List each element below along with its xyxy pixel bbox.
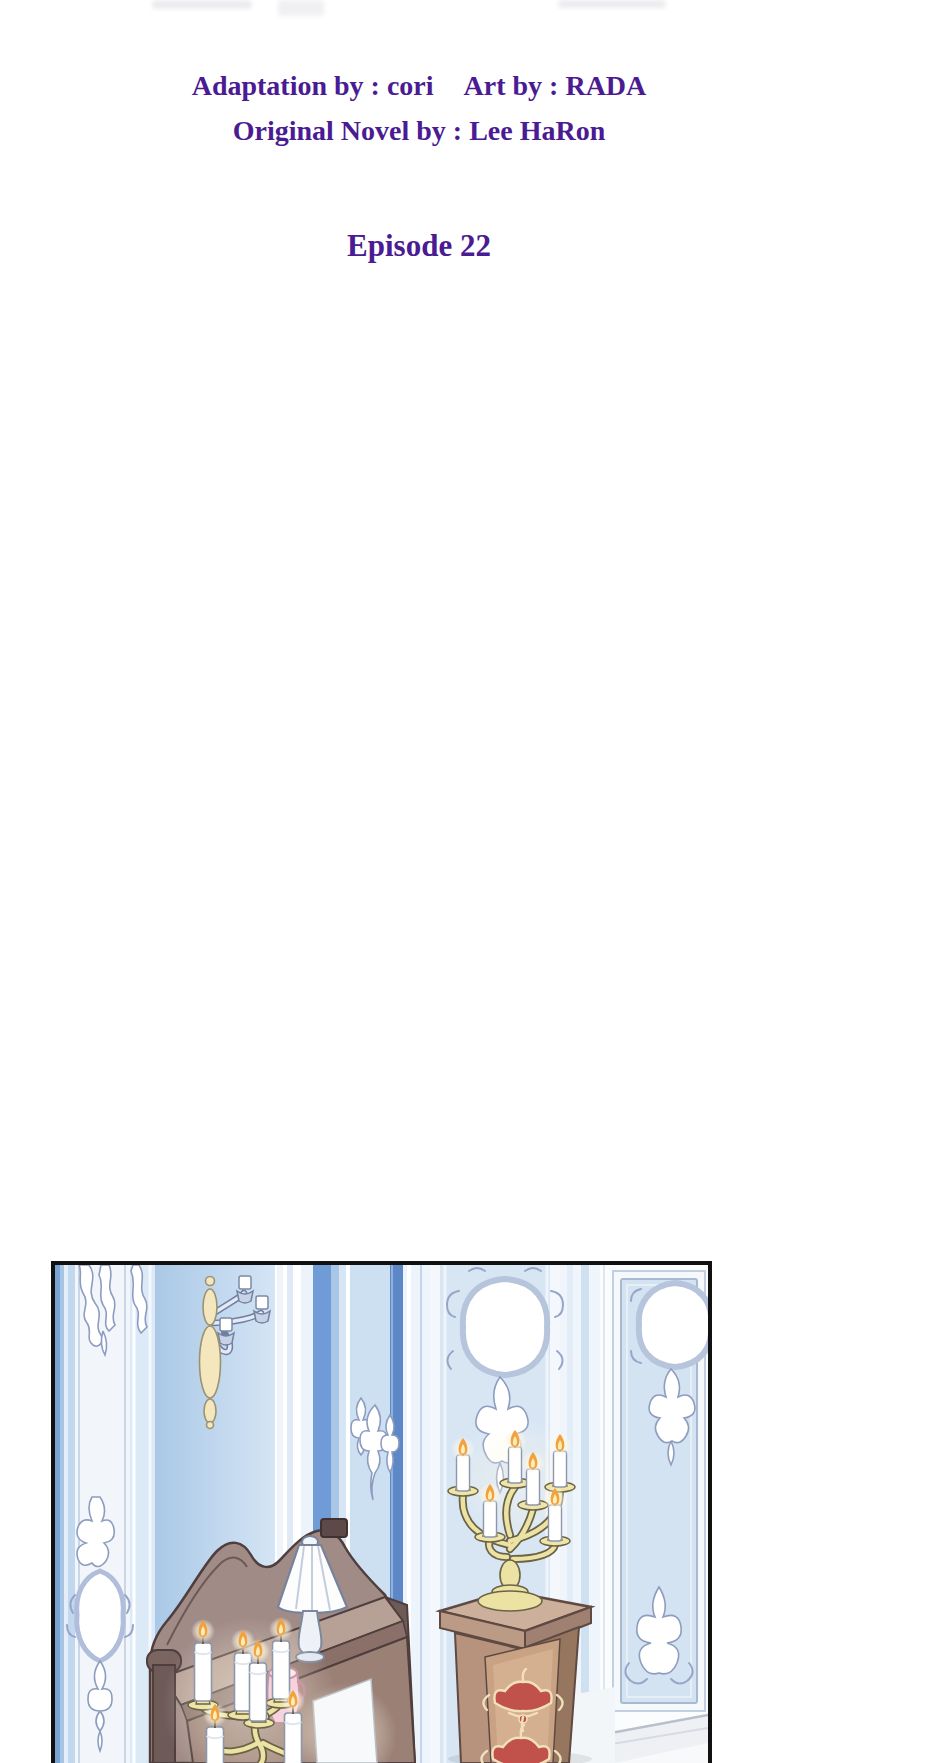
- candle: [250, 1657, 267, 1721]
- credits-line-1: Adaptation by : coriArt by : RADA: [0, 63, 838, 108]
- flame-icon: [191, 1619, 215, 1643]
- pedestal: [440, 1591, 592, 1763]
- flame-icon: [269, 1617, 293, 1641]
- sconce-candle: [239, 1276, 251, 1289]
- flame-icon: [281, 1689, 305, 1713]
- top-cropped-artwork-fragment: [278, 0, 324, 16]
- candle: [195, 1637, 212, 1701]
- sconce-candle: [220, 1318, 232, 1331]
- candle: [285, 1707, 302, 1763]
- credits-line-2: Original Novel by : Lee HaRon: [0, 108, 838, 153]
- original-novel-credit: Original Novel by : Lee HaRon: [233, 115, 606, 146]
- episode-title: Episode 22: [0, 228, 838, 264]
- top-cropped-artwork-fragment: [558, 0, 666, 8]
- adaptation-credit: Adaptation by : cori: [192, 70, 434, 101]
- flame-icon: [543, 1487, 567, 1511]
- top-cropped-artwork-fragment: [152, 0, 252, 9]
- sconce-candle: [256, 1296, 268, 1309]
- illustration-panel: [51, 1261, 712, 1763]
- credits-block: Adaptation by : coriArt by : RADA Origin…: [0, 63, 838, 153]
- art-credit: Art by : RADA: [464, 70, 647, 101]
- flame-icon: [548, 1433, 572, 1457]
- flame-icon: [203, 1703, 227, 1727]
- room-illustration: [55, 1265, 708, 1763]
- flame-icon: [451, 1437, 475, 1461]
- flame-icon: [503, 1429, 527, 1453]
- flame-icon: [521, 1451, 545, 1475]
- candle: [273, 1635, 290, 1699]
- flame-icon: [478, 1483, 502, 1507]
- flame-icon: [246, 1639, 270, 1663]
- candle: [207, 1721, 224, 1763]
